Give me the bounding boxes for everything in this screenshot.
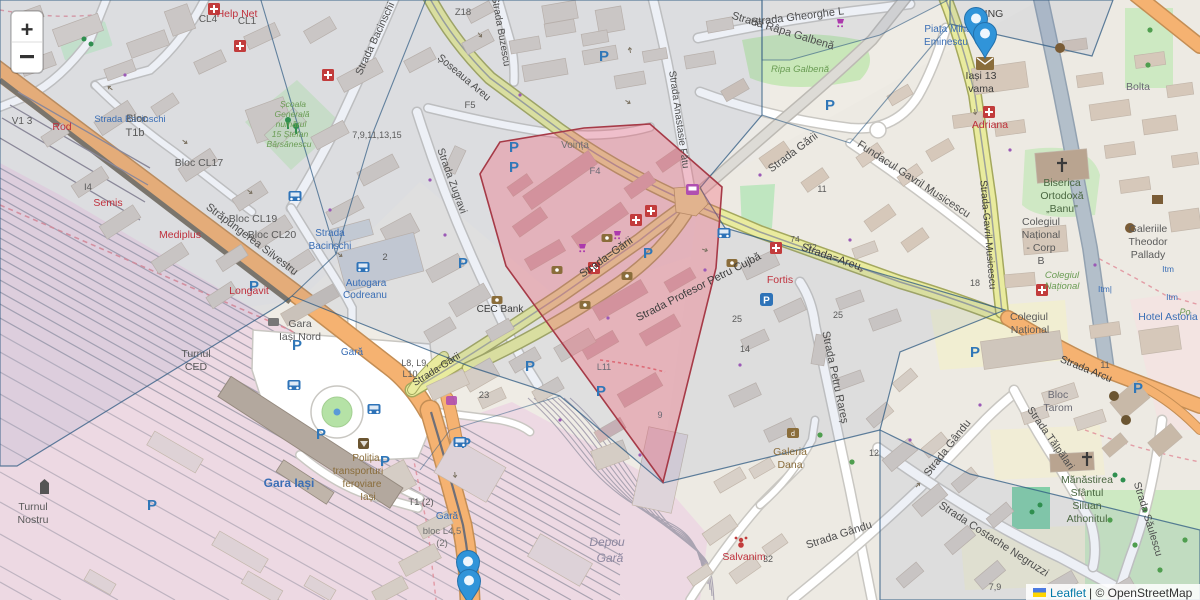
svg-text:Național: Național: [1022, 229, 1061, 241]
svg-text:Pallady: Pallady: [1131, 249, 1166, 261]
svg-text:Strada: Strada: [315, 228, 345, 239]
svg-text:72: 72: [807, 242, 817, 252]
svg-text:2: 2: [382, 252, 387, 263]
svg-text:Colegiul: Colegiul: [1010, 311, 1048, 323]
svg-text:Depou: Depou: [589, 535, 625, 549]
svg-text:Z18: Z18: [455, 7, 471, 18]
svg-text:74: 74: [790, 234, 800, 244]
svg-text:L8, L9,: L8, L9,: [401, 358, 429, 368]
svg-text:L11: L11: [597, 362, 611, 372]
svg-text:L10: L10: [402, 369, 417, 379]
svg-text:P: P: [763, 296, 770, 307]
svg-text:Gară: Gară: [597, 551, 624, 565]
svg-text:T1b: T1b: [126, 127, 145, 139]
svg-text:F5: F5: [464, 100, 475, 111]
svg-text:11: 11: [1100, 360, 1109, 370]
svg-text:Voința: Voința: [561, 140, 589, 151]
svg-text:Itm: Itm: [1162, 264, 1174, 274]
svg-text:P: P: [825, 97, 835, 114]
svg-text:Theodor: Theodor: [1128, 236, 1168, 248]
svg-text:Mănăstirea: Mănăstirea: [1061, 474, 1113, 486]
svg-text:Turnul: Turnul: [18, 501, 47, 513]
svg-text:Autogara: Autogara: [346, 278, 387, 289]
svg-text:F4: F4: [589, 166, 600, 177]
svg-text:transporturi: transporturi: [333, 466, 384, 477]
svg-text:Galeriile: Galeriile: [1129, 223, 1168, 235]
svg-text:P: P: [643, 245, 653, 262]
svg-text:Po: Po: [1179, 307, 1190, 317]
svg-text:Biserica: Biserica: [1043, 177, 1081, 189]
svg-text:25: 25: [732, 314, 742, 324]
svg-text:Bloc CL17: Bloc CL17: [175, 157, 224, 169]
svg-text:Sfântul: Sfântul: [1071, 487, 1104, 499]
svg-text:Gară: Gară: [341, 347, 364, 358]
svg-text:+: +: [21, 17, 34, 42]
svg-text:Galeria: Galeria: [773, 446, 807, 458]
svg-text:| © OpenStreetMap: | © OpenStreetMap: [1089, 586, 1193, 600]
svg-text:Longavit: Longavit: [229, 285, 269, 297]
svg-text:V1 3: V1 3: [12, 116, 33, 127]
svg-text:bloc L4,5: bloc L4,5: [423, 526, 462, 537]
svg-text:Leaflet: Leaflet: [1050, 586, 1087, 600]
svg-text:Fortis: Fortis: [767, 274, 793, 286]
svg-text:P: P: [599, 48, 609, 65]
svg-text:Bloc CL19: Bloc CL19: [229, 213, 278, 225]
svg-text:Bloc: Bloc: [126, 113, 148, 125]
svg-text:P: P: [525, 358, 535, 375]
svg-text:Național: Național: [1011, 324, 1050, 336]
svg-text:P: P: [970, 344, 980, 361]
svg-text:CED: CED: [185, 361, 208, 373]
svg-text:Nostru: Nostru: [18, 514, 49, 526]
svg-text:Colegiul: Colegiul: [1045, 270, 1080, 281]
svg-text:vama: vama: [968, 83, 994, 95]
svg-text:T1 (2): T1 (2): [408, 497, 433, 508]
svg-text:Itm|: Itm|: [1098, 284, 1112, 294]
svg-text:Adriana: Adriana: [972, 119, 1008, 131]
svg-text:15 Ștefan: 15 Ștefan: [272, 129, 309, 139]
svg-text:Semis: Semis: [93, 197, 122, 209]
svg-text:Bârsănescu: Bârsănescu: [267, 139, 312, 149]
svg-text:Iași 13: Iași 13: [966, 70, 997, 82]
svg-text:Gară: Gară: [436, 511, 459, 522]
svg-text:23: 23: [479, 390, 490, 401]
svg-text:P: P: [596, 383, 606, 400]
svg-text:9: 9: [657, 410, 662, 420]
svg-text:P: P: [147, 497, 157, 514]
svg-text:Help Net: Help Net: [217, 8, 258, 20]
svg-text:feroviare: feroviare: [343, 479, 382, 490]
svg-text:CEC Bank: CEC Bank: [477, 304, 525, 315]
svg-text:Național: Național: [1045, 281, 1081, 292]
svg-text:12: 12: [869, 448, 879, 458]
svg-text:32: 32: [763, 554, 773, 564]
svg-text:7,9,11,13,15: 7,9,11,13,15: [352, 130, 401, 140]
svg-text:25: 25: [833, 310, 843, 320]
svg-text:Tarom: Tarom: [1043, 402, 1072, 414]
svg-text:Gara Iași: Gara Iași: [264, 476, 315, 490]
svg-text:Dana: Dana: [777, 459, 802, 471]
svg-text:Salvanim: Salvanim: [722, 551, 765, 563]
svg-text:Iași: Iași: [360, 492, 376, 503]
svg-text:I4: I4: [84, 182, 92, 193]
svg-text:Bacinschi: Bacinschi: [309, 241, 352, 252]
svg-text:Gara: Gara: [288, 318, 312, 330]
svg-text:14: 14: [740, 344, 750, 354]
svg-text:CL4: CL4: [199, 14, 218, 25]
svg-text:7,9: 7,9: [989, 582, 1002, 592]
svg-text:Ortodoxă: Ortodoxă: [1040, 190, 1083, 202]
svg-text:Colegiul: Colegiul: [1022, 216, 1060, 228]
svg-text:P: P: [1133, 380, 1143, 397]
svg-text:Poliția: Poliția: [352, 453, 380, 464]
svg-text:Itm: Itm: [1166, 292, 1178, 302]
svg-text:Bolta: Bolta: [1126, 81, 1150, 93]
svg-text:11: 11: [817, 184, 826, 194]
svg-text:P: P: [509, 159, 519, 176]
svg-text:18: 18: [970, 278, 980, 288]
svg-text:Bloc CL20: Bloc CL20: [248, 229, 297, 241]
svg-text:P: P: [458, 255, 468, 272]
svg-text:Ripa Galbenă: Ripa Galbenă: [771, 64, 829, 75]
svg-text:Bloc: Bloc: [1048, 389, 1068, 401]
svg-text:Rod: Rod: [52, 121, 71, 133]
svg-text:(2): (2): [436, 538, 448, 549]
svg-text:d: d: [791, 431, 795, 438]
svg-text:Școala: Școala: [280, 99, 306, 109]
svg-text:- Corp: - Corp: [1026, 242, 1055, 254]
svg-text:Codreanu: Codreanu: [343, 290, 387, 301]
svg-text:„Banu": „Banu": [1046, 203, 1078, 215]
svg-text:Turnul: Turnul: [181, 348, 210, 360]
svg-text:numărul: numărul: [276, 119, 308, 129]
svg-text:B: B: [1037, 255, 1044, 267]
svg-text:Siluan: Siluan: [1072, 500, 1101, 512]
svg-text:Mediplus: Mediplus: [159, 229, 201, 241]
svg-text:Athonitul: Athonitul: [1067, 513, 1108, 525]
svg-text:P: P: [509, 139, 519, 156]
svg-text:Iași Nord: Iași Nord: [279, 331, 321, 343]
svg-text:Generală: Generală: [275, 109, 310, 119]
svg-text:Eminescu: Eminescu: [924, 37, 968, 48]
svg-text:P: P: [316, 426, 326, 443]
svg-text:Piața Miha: Piața Miha: [924, 24, 972, 35]
